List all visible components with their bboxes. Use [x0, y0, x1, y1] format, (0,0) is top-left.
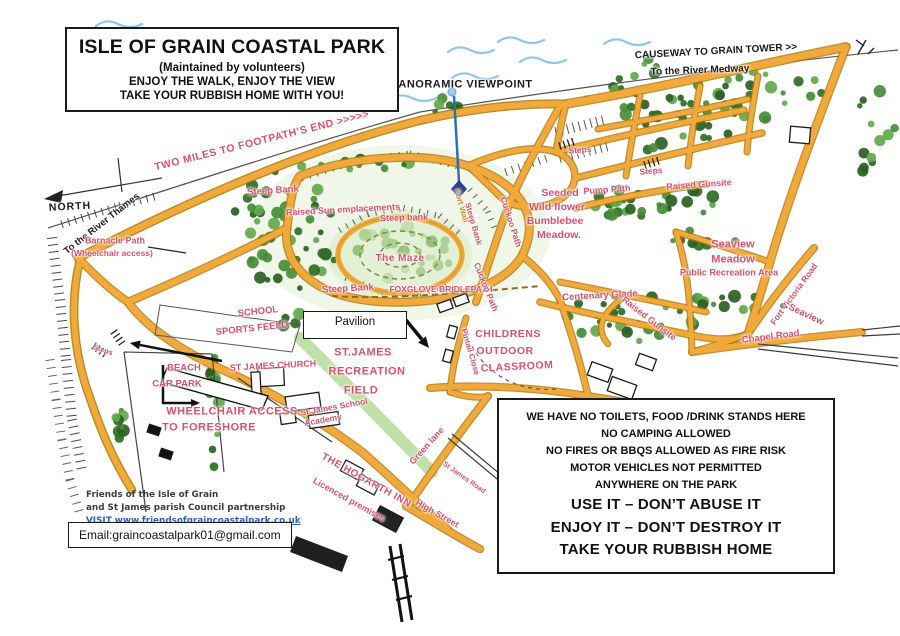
notice-line: ANYWHERE ON THE PARK [505, 477, 827, 494]
title-box: ISLE OF GRAIN COASTAL PARK (Maintained b… [65, 27, 399, 112]
notice-slogan: USE IT – DON’T ABUSE IT [505, 494, 827, 517]
notice-line: MOTOR VEHICLES NOT PERMITTED [505, 460, 827, 477]
title-subtitle: (Maintained by volunteers) [71, 62, 393, 74]
notice-line: WE HAVE NO TOILETS, FOOD /DRINK STANDS H… [505, 409, 827, 426]
pavilion-callout: Pavilion [303, 311, 407, 339]
pavilion-label: Pavilion [335, 316, 375, 328]
rules-notice-box: WE HAVE NO TOILETS, FOOD /DRINK STANDS H… [497, 398, 835, 574]
email-box: Email:graincoastalpark01@gmail.com [68, 522, 292, 548]
scanned-park-map: PANORAMIC VIEWPOINTCAUSEWAY TO GRAIN TOW… [0, 0, 900, 636]
credits-line1: Friends of the Isle of Grain [86, 489, 301, 502]
notice-slogan: ENJOY IT – DON’T DESTROY IT [505, 517, 827, 540]
notice-line: NO CAMPING ALLOWED [505, 426, 827, 443]
email-text: Email:graincoastalpark01@gmail.com [79, 528, 281, 542]
credits-line2: and St James parish Council partnership [86, 502, 301, 515]
notice-slogan: TAKE YOUR RUBBISH HOME [505, 539, 827, 562]
notice-line: NO FIRES OR BBQS ALLOWED AS FIRE RISK [505, 443, 827, 460]
page-title: ISLE OF GRAIN COASTAL PARK [71, 36, 393, 59]
title-line3: ENJOY THE WALK, ENJOY THE VIEW [71, 76, 393, 88]
title-line4: TAKE YOUR RUBBISH HOME WITH YOU! [71, 90, 393, 102]
